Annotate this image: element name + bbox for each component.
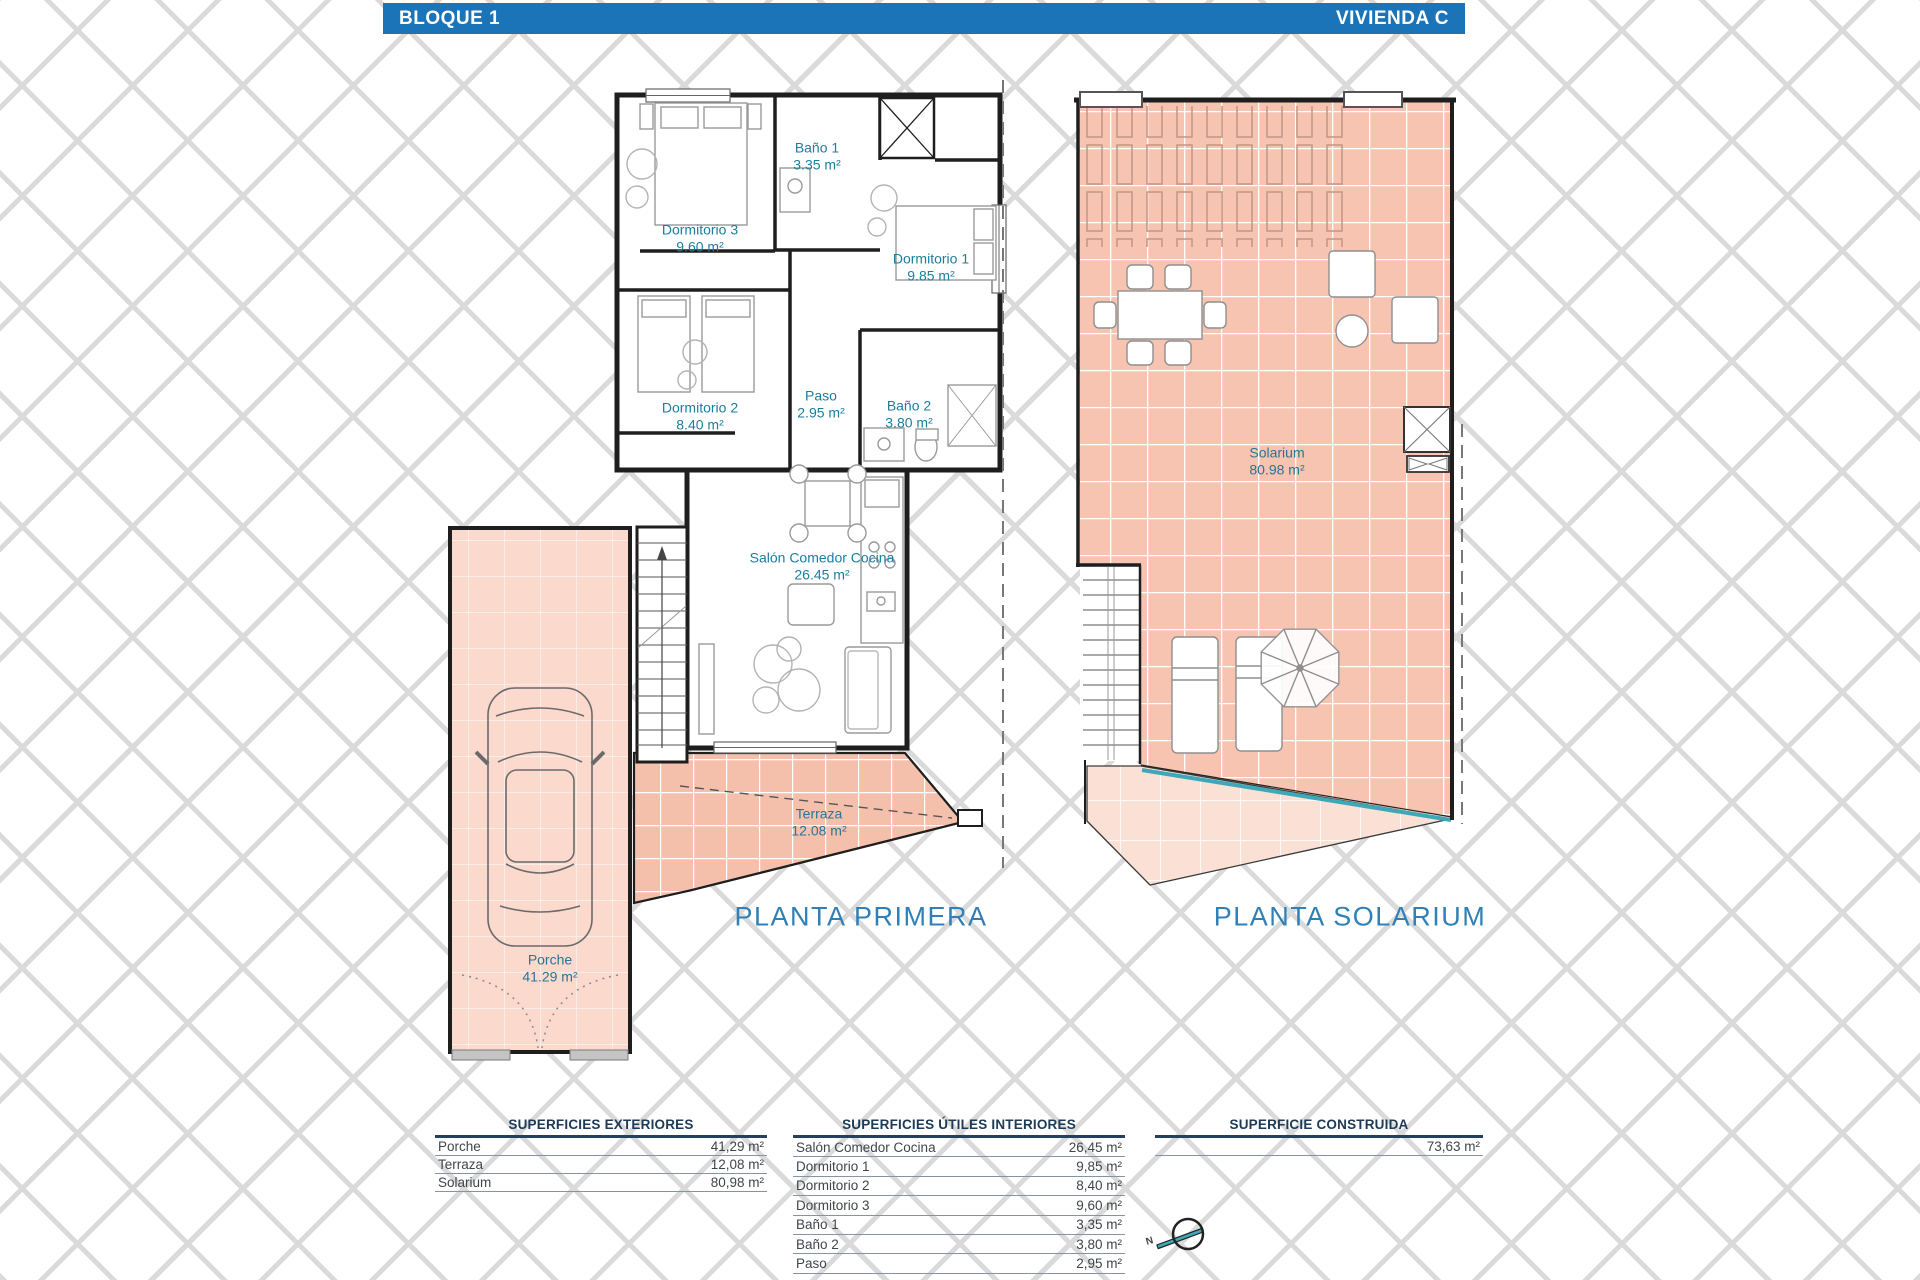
table-row: Salón Comedor Cocina 26,45 m² xyxy=(793,1138,1125,1157)
room-name: Terraza xyxy=(791,805,846,822)
room-area: 80.98 m² xyxy=(1249,461,1304,478)
room-label-dormitorio-3: Dormitorio 3 9.60 m² xyxy=(662,221,738,254)
table-superficie-construida: SUPERFICIE CONSTRUIDA 73,63 m² xyxy=(1155,1117,1483,1156)
row-label: Baño 2 xyxy=(796,1237,839,1252)
room-name: Baño 2 xyxy=(885,397,932,414)
room-name: Solarium xyxy=(1249,444,1304,461)
row-value: 8,40 m² xyxy=(1076,1178,1122,1193)
room-name: Baño 1 xyxy=(793,139,840,156)
room-label-porche: Porche 41.29 m² xyxy=(522,951,577,984)
vivienda-title: VIVIENDA C xyxy=(1336,8,1449,30)
room-area: 3.35 m² xyxy=(793,156,840,173)
row-label: Terraza xyxy=(438,1157,483,1172)
row-value: 3,80 m² xyxy=(1076,1237,1122,1252)
room-area: 9.60 m² xyxy=(662,238,738,255)
room-area: 9.85 m² xyxy=(893,267,969,284)
room-label-solarium: Solarium 80.98 m² xyxy=(1249,444,1304,477)
plan-title-primera: PLANTA PRIMERA xyxy=(734,902,987,933)
room-label-bano-2: Baño 2 3.80 m² xyxy=(885,397,932,430)
row-value: 41,29 m² xyxy=(711,1139,764,1154)
row-value: 80,98 m² xyxy=(711,1175,764,1190)
row-value: 73,63 m² xyxy=(1427,1139,1480,1154)
table-row: Dormitorio 2 8,40 m² xyxy=(793,1177,1125,1196)
table-superficies-exteriores: SUPERFICIES EXTERIORES Porche 41,29 m² T… xyxy=(435,1117,767,1192)
table-superficies-utiles-interiores: SUPERFICIES ÚTILES INTERIORES Salón Come… xyxy=(793,1117,1125,1274)
room-label-bano-1: Baño 1 3.35 m² xyxy=(793,139,840,172)
block-title: BLOQUE 1 xyxy=(399,8,500,30)
room-area: 2.95 m² xyxy=(797,404,844,421)
row-label: Solarium xyxy=(438,1175,491,1190)
floorplan-page: BLOQUE 1 VIVIENDA C xyxy=(0,0,1920,1280)
row-label: Paso xyxy=(796,1256,827,1271)
room-area: 41.29 m² xyxy=(522,968,577,985)
table-title: SUPERFICIES ÚTILES INTERIORES xyxy=(793,1117,1125,1138)
north-compass xyxy=(1157,1219,1203,1249)
room-label-paso: Paso 2.95 m² xyxy=(797,387,844,420)
table-row: Terraza 12,08 m² xyxy=(435,1156,767,1174)
table-row: Paso 2,95 m² xyxy=(793,1254,1125,1273)
row-label: Dormitorio 3 xyxy=(796,1198,870,1213)
row-label: Dormitorio 2 xyxy=(796,1178,870,1193)
table-row: Dormitorio 3 9,60 m² xyxy=(793,1196,1125,1215)
pergola-slats xyxy=(1082,106,1344,247)
floorplan-drawing xyxy=(0,0,1920,1280)
room-name: Dormitorio 3 xyxy=(662,221,738,238)
room-label-salon: Salón Comedor Cocina 26.45 m² xyxy=(750,549,895,582)
row-value: 2,95 m² xyxy=(1076,1256,1122,1271)
room-area: 12.08 m² xyxy=(791,822,846,839)
room-area: 26.45 m² xyxy=(750,566,895,583)
stairs-primera xyxy=(637,527,687,762)
room-name: Paso xyxy=(797,387,844,404)
table-title: SUPERFICIES EXTERIORES xyxy=(435,1117,767,1138)
row-value: 9,85 m² xyxy=(1076,1159,1122,1174)
room-area: 3.80 m² xyxy=(885,414,932,431)
row-value: 3,35 m² xyxy=(1076,1217,1122,1232)
stairs-solarium xyxy=(1080,567,1140,761)
parasol-icon xyxy=(1261,629,1339,707)
room-name: Salón Comedor Cocina xyxy=(750,549,895,566)
plan-title-solarium: PLANTA SOLARIUM xyxy=(1214,902,1487,933)
table-row: Baño 2 3,80 m² xyxy=(793,1235,1125,1254)
row-value: 9,60 m² xyxy=(1076,1198,1122,1213)
room-label-dormitorio-1: Dormitorio 1 9.85 m² xyxy=(893,250,969,283)
room-name: Dormitorio 1 xyxy=(893,250,969,267)
room-name: Porche xyxy=(522,951,577,968)
row-label: Salón Comedor Cocina xyxy=(796,1140,936,1155)
row-value: 12,08 m² xyxy=(711,1157,764,1172)
table-title: SUPERFICIE CONSTRUIDA xyxy=(1155,1117,1483,1138)
table-row: Dormitorio 1 9,85 m² xyxy=(793,1157,1125,1176)
table-row: Baño 1 3,35 m² xyxy=(793,1216,1125,1235)
table-row: 73,63 m² xyxy=(1155,1138,1483,1156)
plan-solarium xyxy=(1074,92,1462,885)
row-value: 26,45 m² xyxy=(1069,1140,1122,1155)
room-label-dormitorio-2: Dormitorio 2 8.40 m² xyxy=(662,399,738,432)
room-area: 8.40 m² xyxy=(662,416,738,433)
table-row: Solarium 80,98 m² xyxy=(435,1174,767,1192)
header-bar: BLOQUE 1 VIVIENDA C xyxy=(383,3,1465,34)
row-label: Dormitorio 1 xyxy=(796,1159,870,1174)
row-label: Baño 1 xyxy=(796,1217,839,1232)
room-label-terraza: Terraza 12.08 m² xyxy=(791,805,846,838)
room-name: Dormitorio 2 xyxy=(662,399,738,416)
row-label: Porche xyxy=(438,1139,481,1154)
table-row: Porche 41,29 m² xyxy=(435,1138,767,1156)
